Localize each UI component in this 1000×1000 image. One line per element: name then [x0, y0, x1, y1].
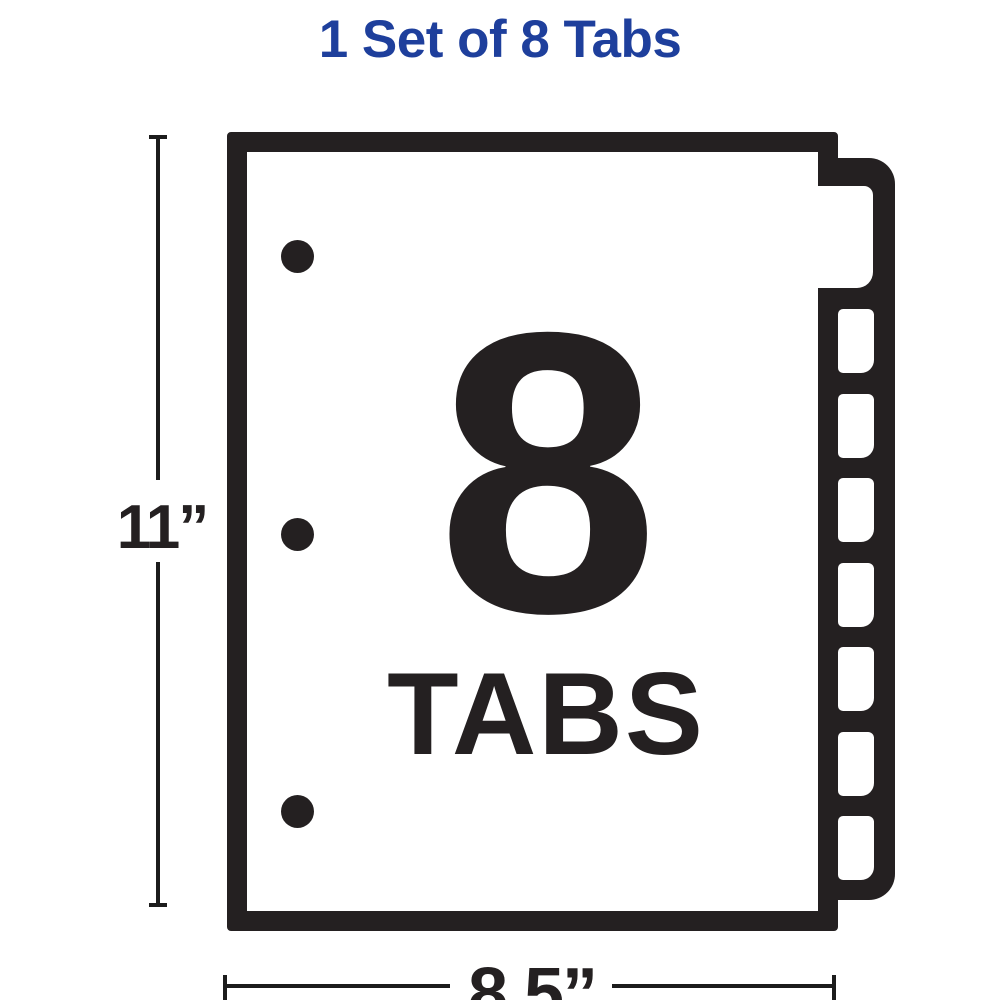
tab-count-word: TABS	[250, 655, 842, 772]
tab-window	[838, 309, 874, 373]
tab-window	[838, 816, 874, 880]
tab-window	[838, 478, 874, 542]
width-dimension-label: 8.5”	[432, 958, 632, 1000]
width-dimension-line-left	[225, 984, 450, 988]
set-count-title: 1 Set of 8 Tabs	[0, 13, 1000, 66]
height-dimension-label: 11”	[98, 497, 226, 559]
punch-hole	[281, 795, 314, 828]
product-diagram: 1 Set of 8 Tabs 11” 8 TABS 8.5”	[0, 0, 1000, 1000]
tab-window	[838, 647, 874, 711]
tab-window	[838, 732, 874, 796]
width-dimension-tick-right	[832, 975, 836, 1000]
height-dimension-line-upper	[156, 137, 160, 480]
tab-count-number: 8	[250, 273, 842, 673]
tab-window	[838, 563, 874, 627]
height-dimension-line-lower	[156, 562, 160, 907]
width-dimension-line-right	[612, 984, 834, 988]
height-dimension-tick-bottom	[149, 903, 167, 907]
punch-hole	[281, 518, 314, 551]
punch-hole	[281, 240, 314, 273]
tab-window	[838, 394, 874, 458]
